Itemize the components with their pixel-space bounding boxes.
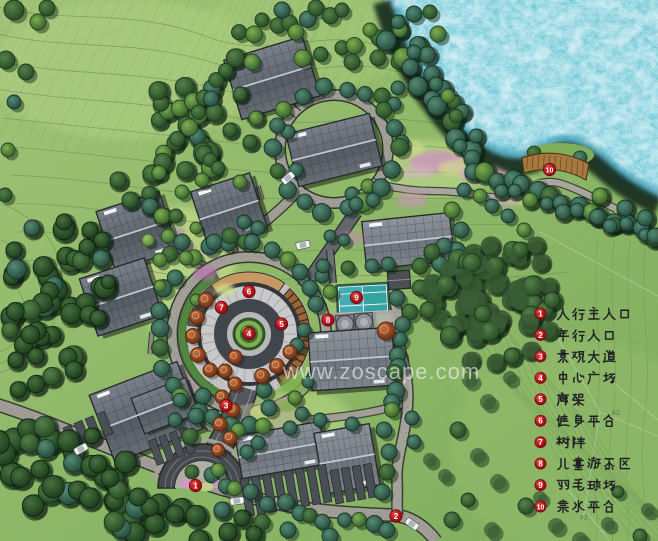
svg-text:#2: #2 [612,410,620,417]
svg-text:9: 9 [354,293,359,302]
svg-text:4: 4 [538,374,543,383]
svg-text:2: 2 [394,512,399,521]
svg-text:1: 1 [538,309,543,318]
svg-text:6: 6 [247,287,252,296]
svg-text:5: 5 [538,395,543,404]
svg-text:3: 3 [224,401,229,410]
svg-text:8: 8 [538,460,543,469]
svg-text:7: 7 [538,438,543,447]
svg-text:3: 3 [538,352,543,361]
svg-text:9: 9 [538,481,543,490]
svg-text:4: 4 [247,329,252,338]
svg-text:#2: #2 [580,515,588,522]
svg-text:8: 8 [326,316,331,325]
svg-text:10: 10 [537,504,545,511]
svg-text:7: 7 [219,303,224,312]
svg-text:1: 1 [193,481,198,490]
svg-text:www.zoscape.com: www.zoscape.com [282,359,480,384]
svg-text:5: 5 [279,320,284,329]
svg-text:10: 10 [546,167,554,174]
svg-text:6: 6 [538,417,543,426]
svg-text:2: 2 [538,331,543,340]
